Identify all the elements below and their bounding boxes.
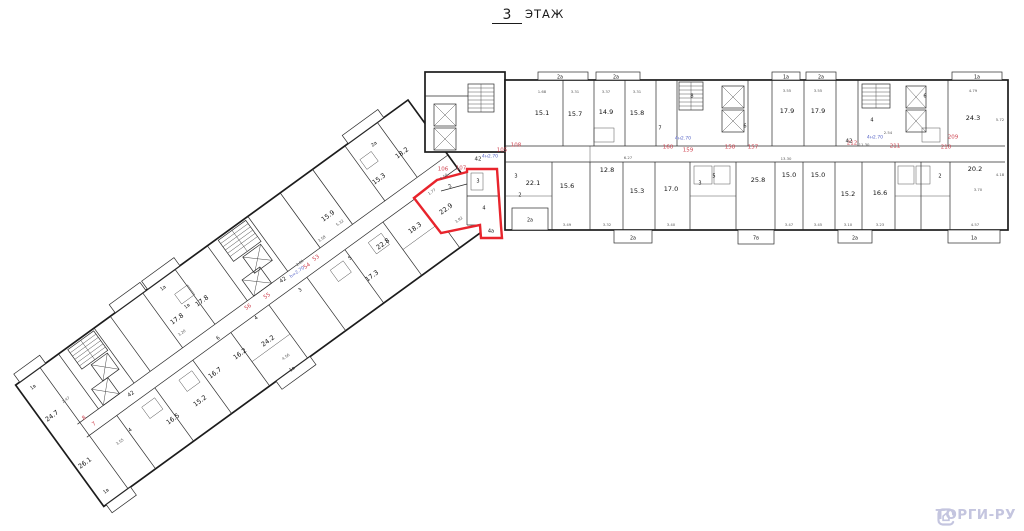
floorplan-page: 15.115.714.915.817.917.924.322.115.612.8… bbox=[0, 0, 1024, 531]
plan-label-note: 4н2.70 bbox=[867, 135, 883, 141]
plan-label-small: 4а bbox=[488, 229, 494, 235]
plan-label-bal: 2а bbox=[527, 218, 533, 224]
plan-label-dim: 3.37 bbox=[602, 89, 611, 94]
plan-label-room: 12.8 bbox=[600, 166, 614, 174]
plan-label-dim: 1.68 bbox=[538, 89, 547, 94]
plan-label-small: 3 bbox=[698, 181, 701, 187]
plan-label-small: 3 bbox=[476, 179, 479, 185]
plan-label-room: 15.7 bbox=[568, 110, 582, 118]
plan-label-apt: 159 bbox=[683, 148, 694, 154]
plan-label-apt: 210 bbox=[941, 145, 952, 151]
plan-label-dim: 4.18 bbox=[996, 172, 1005, 177]
plan-label-apt: 160 bbox=[663, 145, 674, 151]
plan-label-bal: 1а bbox=[971, 236, 977, 242]
plan-label-dim: 6.27 bbox=[624, 155, 633, 160]
plan-label-small: 4 bbox=[870, 118, 873, 124]
plan-label-corr: 42 bbox=[475, 157, 482, 163]
watermark: ТОРГИ-РУ bbox=[936, 507, 1016, 523]
plan-label-apt: 157 bbox=[748, 145, 759, 151]
plan-label-small: 5 bbox=[712, 174, 715, 180]
plan-label-small: 2 bbox=[518, 193, 521, 199]
plan-label-room: 25.8 bbox=[751, 176, 765, 184]
plan-label-dim: 3.10 bbox=[844, 222, 853, 227]
plan-label-room: 15.6 bbox=[560, 182, 574, 190]
plan-label-small: 8 bbox=[690, 94, 693, 100]
plan-label-apt: 107 bbox=[456, 166, 467, 172]
plan-label-room: 15.2 bbox=[841, 190, 855, 198]
plan-label-bal: 2а bbox=[630, 236, 636, 242]
plan-label-bal: 2а bbox=[818, 75, 824, 81]
plan-label-room: 17.9 bbox=[811, 107, 825, 115]
plan-label-dim: 3.47 bbox=[785, 222, 794, 227]
plan-label-bal: 2а bbox=[557, 75, 563, 81]
left-wing-walls bbox=[10, 92, 502, 515]
floorplan-svg: 15.115.714.915.817.917.924.322.115.612.8… bbox=[0, 0, 1024, 531]
plan-label-dim: 11.30 bbox=[859, 142, 870, 147]
plan-label-small: 4 bbox=[482, 206, 485, 212]
plan-label-room: 22.1 bbox=[526, 179, 540, 187]
plan-label-room: 15.3 bbox=[630, 187, 644, 195]
plan-label-small: 6 bbox=[743, 124, 746, 130]
plan-label-small: 7 bbox=[658, 126, 661, 132]
plan-label-room: 16.6 bbox=[873, 189, 887, 197]
plan-label-dim: 3.40 bbox=[667, 222, 676, 227]
plan-label-corr: 42 bbox=[846, 139, 853, 145]
plan-label-dim: 3.70 bbox=[974, 187, 983, 192]
plan-label-small: 3 bbox=[514, 174, 517, 180]
plan-label-dim: 3.31 bbox=[571, 89, 580, 94]
plan-label-room: 15.0 bbox=[811, 171, 825, 179]
plan-label-dim: 5.72 bbox=[996, 117, 1005, 122]
bend-core bbox=[425, 72, 505, 152]
plan-label-room: 15.8 bbox=[630, 109, 644, 117]
plan-label-dim: 2.54 bbox=[884, 130, 893, 135]
page-title: 3ЭТАЖ bbox=[492, 4, 564, 24]
plan-label-bal: 2а bbox=[852, 236, 858, 242]
plan-label-dim: 4.79 bbox=[969, 88, 978, 93]
plan-label-dim: 3.31 bbox=[633, 89, 642, 94]
plan-label-apt: 211 bbox=[890, 144, 901, 150]
plan-label-room: 14.9 bbox=[599, 108, 613, 116]
plan-label-bal: 2а bbox=[613, 75, 619, 81]
plan-label-bal: 1а bbox=[783, 75, 789, 81]
floor-label: ЭТАЖ bbox=[525, 7, 564, 21]
right-wing-walls bbox=[505, 72, 1008, 244]
plan-label-bal: 1а bbox=[974, 75, 980, 81]
plan-label-note: 4н2.70 bbox=[482, 154, 498, 160]
plan-label-note: 4н2.70 bbox=[675, 136, 691, 142]
plan-label-apt: 106 bbox=[438, 167, 449, 173]
plan-label-room: 17.0 bbox=[664, 185, 678, 193]
plan-label-dim: 3.55 bbox=[783, 88, 792, 93]
plan-label-bal: 7в bbox=[753, 236, 759, 242]
plan-label-apt: 209 bbox=[948, 135, 959, 141]
plan-label-dim: 13.30 bbox=[781, 156, 792, 161]
torgi-logo-icon bbox=[936, 507, 956, 527]
plan-label-dim: 4.57 bbox=[971, 222, 980, 227]
plan-label-dim: 3.23 bbox=[876, 222, 885, 227]
plan-label-apt: 158 bbox=[725, 145, 736, 151]
plan-label-dim: 3.55 bbox=[814, 88, 823, 93]
plan-label-small: 2 bbox=[938, 174, 941, 180]
plan-label-room: 15.0 bbox=[782, 171, 796, 179]
plan-label-room: 24.3 bbox=[966, 114, 980, 122]
plan-label-small: 6 bbox=[923, 94, 926, 100]
plan-label-dim: 3.32 bbox=[603, 222, 612, 227]
plan-label-dim: 3.49 bbox=[563, 222, 572, 227]
plan-label-apt: 108 bbox=[511, 143, 522, 149]
plan-label-apt: 105 bbox=[497, 148, 508, 154]
floor-number: 3 bbox=[492, 7, 522, 24]
plan-label-room: 17.9 bbox=[780, 107, 794, 115]
plan-label-room: 20.2 bbox=[968, 165, 982, 173]
plan-label-room: 15.1 bbox=[535, 109, 549, 117]
plan-label-dim: 3.45 bbox=[814, 222, 823, 227]
